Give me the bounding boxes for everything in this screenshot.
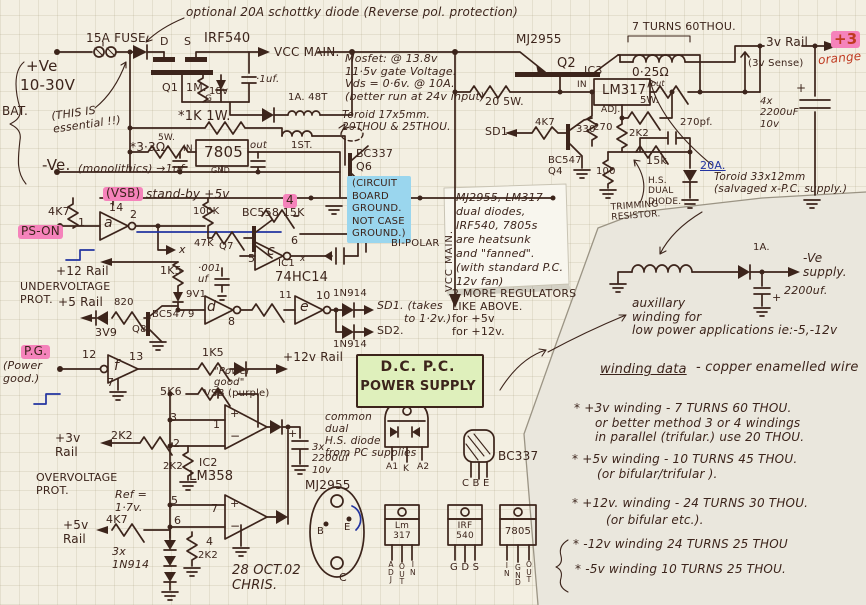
sd1-note2: to 1·2v.) [404, 313, 451, 326]
cap-01uf-label: ·1uf. [256, 74, 279, 85]
gate-d-label: d [207, 300, 216, 316]
pin-12: 12 [82, 349, 96, 362]
zener-9v1 [173, 292, 183, 302]
turns7-label: 7 TURNS 60THOU. [632, 21, 736, 34]
opamp-b-minus: − [230, 520, 240, 534]
q2-label: Q2 [557, 57, 576, 72]
standby-label: stand-by +5v [146, 188, 230, 202]
r-47k-label: 47K [194, 238, 214, 249]
r-15k-label: 15k [646, 155, 667, 168]
pg-sub-label: (Power good.) [3, 360, 42, 385]
winding-line-4: * +5v winding - 10 TURNS 45 THOU. [572, 453, 797, 467]
cap-1uf-out [251, 152, 265, 172]
ps-on-waveform [66, 250, 94, 260]
r-2k2-c-label: 2K2 [198, 550, 218, 561]
diode-chain-1 [164, 540, 176, 550]
cap-4x-plus: + [796, 82, 806, 96]
gate-c-label: c [267, 244, 275, 260]
ic-7805-label: 7805 [204, 144, 243, 161]
winding-line-8: * -12v winding 24 TURNS 25 THOU [573, 538, 788, 552]
pin-7f: 7 [107, 377, 114, 390]
pin-6c: 6 [291, 235, 298, 248]
resistor-d-e [241, 304, 295, 322]
sd2-label: SD2. [377, 325, 404, 338]
r-025-label: 0·25Ω [632, 66, 669, 80]
in-317: IN [577, 80, 587, 90]
7805-pin-in: I N [504, 562, 510, 577]
pin-c: C [339, 572, 347, 585]
lm317-package-tab [385, 505, 419, 519]
toroid17-note: Toroid 17x5mm. 20THOU & 25THOU. [342, 110, 451, 134]
ic2-label: IC2 [199, 457, 218, 470]
opamp-b-plus: + [230, 498, 239, 511]
r-1k5-pg-label: 1K5 [202, 347, 224, 360]
zener-3v9-label: 3V9 [95, 327, 117, 340]
dc-pc-title: D.C. P.C. [356, 360, 480, 376]
bipolar-label: BI-POLAR [391, 238, 440, 249]
r-270-label: 270 [593, 122, 613, 133]
q8-label: Q8 [132, 324, 147, 335]
diode-opamp-a [270, 420, 282, 434]
r-20-5w-label: 20 5W. [485, 96, 524, 109]
gate-f-label: f [114, 359, 119, 375]
transistor-q4 [566, 124, 570, 150]
plus5-rail-label: +5 Rail [58, 296, 103, 310]
ps-on-tag: PS-ON [18, 225, 63, 239]
first-winding-label: 1ST. [291, 140, 313, 151]
x-mark: x [179, 244, 186, 257]
irf540-pins: G D S [450, 562, 479, 573]
sense-3v-label: (3v Sense) [748, 58, 803, 69]
diode-1n914-b [342, 325, 354, 339]
pin-6b: 6 [174, 515, 181, 528]
r-3r3-wattage: 5W. [158, 133, 175, 143]
pin-5b: 5 [171, 495, 178, 508]
lm317-pin-in: I N [410, 561, 416, 576]
cap-bipolar [336, 248, 358, 264]
cap-270pf-label: 270pf. [680, 117, 713, 128]
minus-ve-label: -Ve. [42, 157, 70, 174]
winding-data-title2: - copper enamelled wire [696, 361, 859, 376]
opamp-a-minus: − [230, 430, 240, 444]
rail-3v-label: 3v Rail [766, 36, 808, 50]
aux-note: auxillary winding for low power applicat… [632, 297, 837, 338]
winding-line-2: or better method 3 or 4 windings [595, 417, 800, 431]
cap-270pf [608, 132, 690, 152]
mj2955-package-label: MJ2955 [305, 479, 351, 493]
pin-1: 1 [78, 217, 85, 230]
diode-1a-label: 1A. [753, 242, 770, 253]
r-025-wattage: 5W. [640, 95, 659, 106]
winding-line-7: (or bifular etc.). [606, 514, 704, 528]
plus3v-rail-label: +3v Rail [55, 432, 80, 459]
zener-18v-label: 18v [209, 86, 228, 97]
toroid33-note: Toroid 33x12mm (salvaged x-P.C. supply.) [714, 172, 847, 196]
turns-bracket [628, 36, 690, 42]
schematic-page: optional 20A schottky diode (Reverse pol… [0, 0, 866, 605]
bc337-package-label: BC337 [498, 450, 538, 464]
two-more-note: 2 MORE REGULATORS LIKE ABOVE. for +5v fo… [452, 288, 576, 338]
winding-line-6: * +12v. winding - 24 TURNS 30 THOU. [572, 497, 808, 511]
power-supply-title: POWER SUPPLY [356, 380, 480, 395]
monolithics-note: (monolithics) →1uf [78, 163, 184, 176]
plus5v-rail2-label: +5v Rail [63, 519, 88, 546]
irf540-package-label: IRF 540 [454, 521, 476, 542]
7805-pin-gnd: G N D [515, 564, 521, 587]
mosfet-note: Mosfet: @ 13.8v 11·5v gate Voltage. Vds … [345, 53, 485, 103]
gnd-7805: GND [211, 166, 230, 175]
cap-001-label: ·001 uf [198, 263, 221, 286]
pin-a2: A2 [417, 462, 429, 472]
reverse-diode [133, 45, 147, 59]
pin-k: K [403, 464, 409, 474]
diode-chain-2 [164, 556, 176, 566]
pin-14: 14 [109, 202, 123, 215]
sd1-note: SD1. (takes [377, 300, 443, 313]
r-820-label: 820 [114, 297, 134, 308]
q1-label: Q1 [162, 82, 178, 95]
diode-3x-label: 3x 1N914 [112, 546, 149, 571]
lm317-package-label: Lm 317 [391, 521, 413, 542]
lm317-pin-adj: A D J [388, 561, 394, 584]
common-diode-note: common dual H.S. diode from PC supplies [325, 412, 416, 460]
date-signature: 28 OCT.02 CHRIS. [232, 564, 301, 594]
resistor-4k7-c [517, 127, 566, 139]
zener-3v9 [96, 311, 108, 325]
winding-data-title: winding data [600, 363, 687, 378]
cap-3x-plus: + [288, 428, 297, 441]
pin-2a: 2 [173, 438, 180, 451]
fuse-label: 15A FUSE. [86, 32, 150, 46]
bc547-q4-label: BC547 Q4 [548, 155, 582, 178]
pins-cbe: C B E [462, 478, 490, 489]
cap-3x2200 [292, 441, 308, 474]
resistor-025 [650, 86, 760, 104]
pin-e: E [344, 522, 351, 533]
plus3-tag: +3 [831, 31, 860, 48]
r-2k2-b-label: 2K2 [163, 461, 183, 472]
coil-1st [282, 131, 312, 136]
pin-9: 9 [188, 309, 195, 320]
pin-4b: 4 [206, 536, 213, 549]
out-317: out [651, 79, 665, 88]
blue-scribble [352, 506, 361, 530]
bc558-15k-label: BC558 15K [242, 207, 305, 220]
plus-ve-label: +Ve [26, 58, 58, 75]
essential-pointer [95, 62, 126, 108]
pin-13: 13 [129, 351, 143, 364]
diode-1n914-b-label: 1N914 [333, 339, 367, 350]
mj2955-top-label: MJ2955 [516, 33, 562, 47]
pin-d: D [160, 36, 169, 49]
zener-9v1-label: 9V1 [186, 289, 206, 300]
toroid-48t-coil [288, 111, 320, 115]
resistor-2k2-d [617, 118, 627, 152]
out-7805: out [250, 140, 267, 151]
ve-supply-label: -Ve supply. [803, 252, 847, 279]
pin-8: 8 [228, 316, 235, 329]
bc337-package [464, 430, 494, 462]
adj-317: ADJ. [601, 105, 620, 115]
overvoltage-label: OVERVOLTAGE PROT. [36, 472, 117, 497]
coil-48t-label: 1A. 48T [288, 92, 328, 103]
in-7805: IN [183, 144, 193, 154]
ground-q8 [150, 342, 166, 350]
pin-7b: 7 [211, 503, 218, 516]
diode-1n914-a [342, 303, 354, 317]
resistor-4k7-b [112, 524, 170, 542]
pin-s: S [184, 36, 191, 49]
pin-3a: 3 [170, 412, 177, 425]
7805-package-label: 7805 [502, 526, 534, 537]
plus12-rail-label: +12 Rail [56, 265, 109, 279]
schottky-note: optional 20A schottky diode (Reverse pol… [186, 6, 518, 20]
sticky-note-text: MJ2955, LM317 dual diodes, IRF540, 7805s… [456, 191, 563, 289]
trimming-label: TRIMMING RESISTOR. [610, 199, 661, 223]
lm358-label: LM358 [189, 470, 233, 485]
r-2k2-a-label: 2K2 [111, 430, 133, 443]
pin-b: B [317, 526, 324, 537]
r-4k7-c-label: 4K7 [535, 117, 555, 128]
ic1-name-label: 74HC14 [275, 271, 328, 286]
plus12v-rail-label: +12v Rail [283, 351, 343, 365]
q7-label: Q7 [219, 241, 234, 252]
pin-11: 11 [279, 290, 292, 301]
diode-chain-3 [164, 572, 176, 582]
winding-line-9: * -5v winding 10 TURNS 25 THOU. [575, 563, 786, 577]
pin-5c: 5 [248, 253, 255, 266]
irf540-package-tab [448, 505, 482, 519]
r-4k7-a-label: 4K7 [48, 206, 70, 219]
vsb-tag: (VSB) [103, 187, 143, 201]
vcc-main-vertical: VCC MAIN. [444, 230, 455, 292]
bc547-q8-label: BC547 [152, 309, 186, 320]
r-1m-label: 1M. [186, 82, 207, 95]
ground-q6 [326, 206, 342, 214]
winding-line-3: in parallel (trifular.) use 20 THOU. [595, 431, 804, 445]
pin-10: 10 [316, 290, 330, 303]
x-small-mark: x [300, 254, 306, 264]
cap-4x-label: 4x 2200uF 10v [760, 96, 799, 130]
winding-line-1: * +3v winding - 7 TURNS 60 THOU. [574, 402, 792, 416]
coil-7turns [633, 55, 685, 62]
pin-1a: 1 [213, 419, 220, 432]
gate-a-label: a [104, 216, 113, 232]
sd1-label: SD1 [485, 126, 508, 139]
pin-a1: A1 [386, 462, 398, 472]
7805-pin-out: O U T [526, 561, 532, 584]
gate-e-label: e [300, 300, 309, 316]
power-good-quote: "Power good" [214, 366, 250, 389]
r-4k7-b-label: 4K7 [106, 514, 128, 527]
r-1k1w-label: *1K 1W. [178, 110, 231, 125]
r-100k-label: 100K [193, 206, 219, 217]
r-2k2-d-label: 2K2 [629, 128, 649, 139]
diode-opamp-b [276, 510, 288, 524]
lm317-pin-out: O U T [399, 563, 405, 586]
r-100-label: 100 [596, 166, 616, 177]
voltage-range: 10-30V [20, 77, 75, 94]
pg-waveform [34, 394, 60, 404]
battery-label: BAT. [2, 105, 28, 119]
pg-tag: P.G. [21, 345, 50, 359]
vcc-main-label: VCC MAIN. [274, 46, 339, 60]
cap-01uf [242, 77, 256, 102]
bc337-q6-label: BC337 Q6 [356, 148, 393, 173]
irf540-label: IRF540 [204, 32, 250, 47]
vsb-purple-label: VSB (purple) [204, 388, 270, 399]
winding-line-5: (or bifular/trifular ). [597, 468, 718, 482]
hs-dual-diode [683, 170, 697, 182]
circuit-ground-note: (CIRCUIT BOARD GROUND. NOT CASE GROUND.) [347, 176, 411, 243]
diode-1n914-a-label: 1N914 [333, 288, 367, 299]
pin-2: 2 [130, 209, 137, 222]
ic3-label: IC3 [584, 65, 603, 78]
ref-17-label: Ref = 1·7v. [115, 489, 147, 514]
ic1-label: IC1 [278, 258, 295, 269]
trimming-pointer [634, 160, 644, 203]
r-5k6-label: 5K6 [160, 386, 182, 399]
r-1k5-uv-label: 1K5 [160, 265, 182, 278]
cap-2200-label: 2200uf. [784, 285, 828, 298]
opamp-a-plus: + [230, 408, 239, 421]
